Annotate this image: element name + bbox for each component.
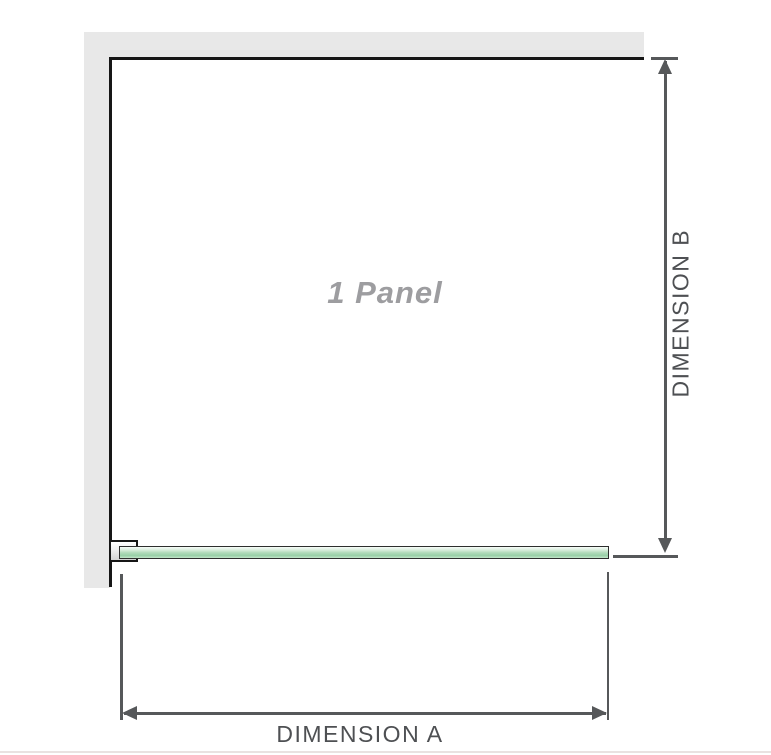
bottom-edge-rule xyxy=(0,751,771,753)
panel-left-edge xyxy=(109,57,112,587)
dimension-b-line xyxy=(664,61,667,544)
panel-dimension-diagram: 1 Panel DIMENSION B DIMENSION A xyxy=(0,0,771,755)
panel-top-edge xyxy=(109,57,644,60)
wall-top-strip xyxy=(84,32,644,57)
panel-count-label: 1 Panel xyxy=(300,274,470,312)
dimension-a-left-extension-line xyxy=(120,574,123,720)
arrow-left-icon xyxy=(122,706,137,720)
dimension-b-label: DIMENSION B xyxy=(669,232,694,398)
arrow-right-icon xyxy=(592,706,607,720)
dimension-b-bottom-tick xyxy=(613,555,678,558)
wall-left-strip xyxy=(84,32,110,588)
glass-panel-plan-view xyxy=(119,546,609,559)
dimension-a-label: DIMENSION A xyxy=(260,721,460,747)
arrow-down-icon xyxy=(658,538,672,553)
dimension-a-line xyxy=(124,712,606,715)
dimension-a-right-extension-line xyxy=(607,572,610,720)
arrow-up-icon xyxy=(658,59,672,74)
